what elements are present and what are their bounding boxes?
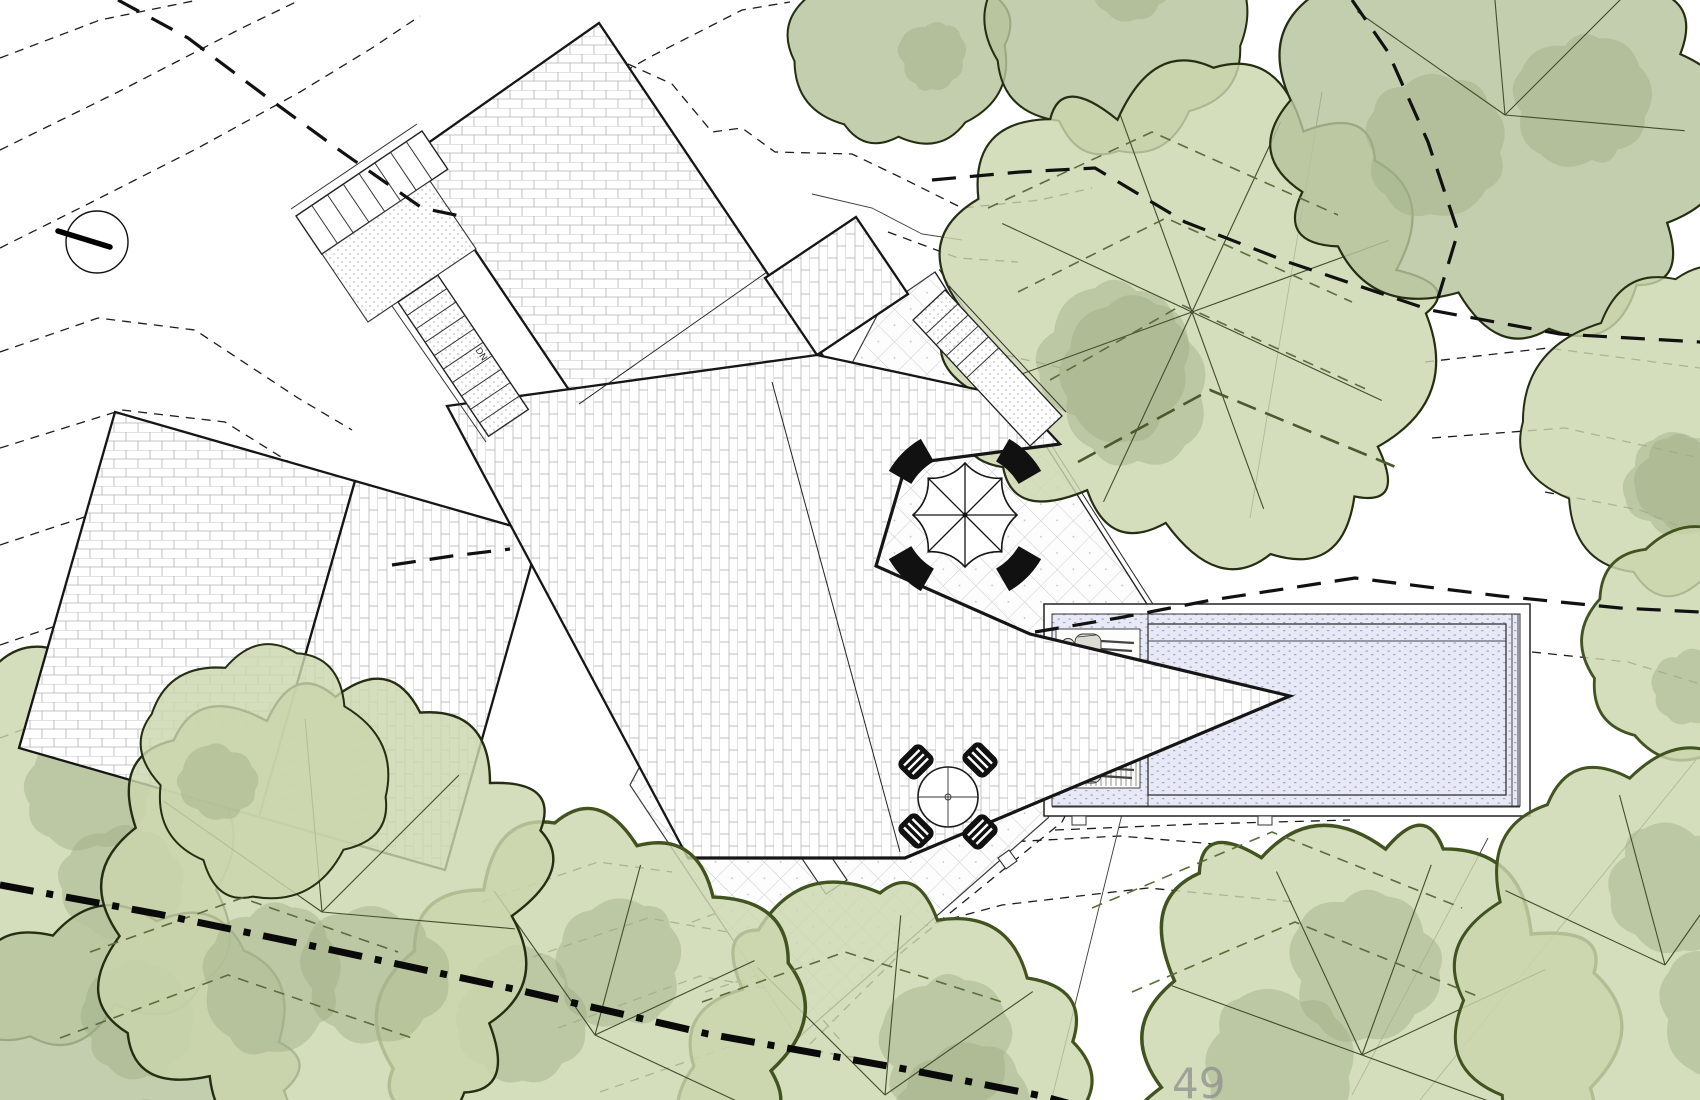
contour-line bbox=[0, 318, 352, 430]
site-plan-page: DN49 bbox=[0, 0, 1700, 1100]
pool-edge-tab bbox=[1072, 816, 1086, 825]
site-plan-drawing: DN49 bbox=[0, 0, 1700, 1100]
elevation-label: 49 bbox=[1172, 1059, 1225, 1100]
pool-edge-tab bbox=[1258, 816, 1272, 825]
contour-line bbox=[0, 0, 300, 150]
umbrella-pole bbox=[963, 513, 968, 518]
tree-canopy bbox=[788, 0, 1011, 144]
survey-point-circle bbox=[58, 211, 128, 273]
